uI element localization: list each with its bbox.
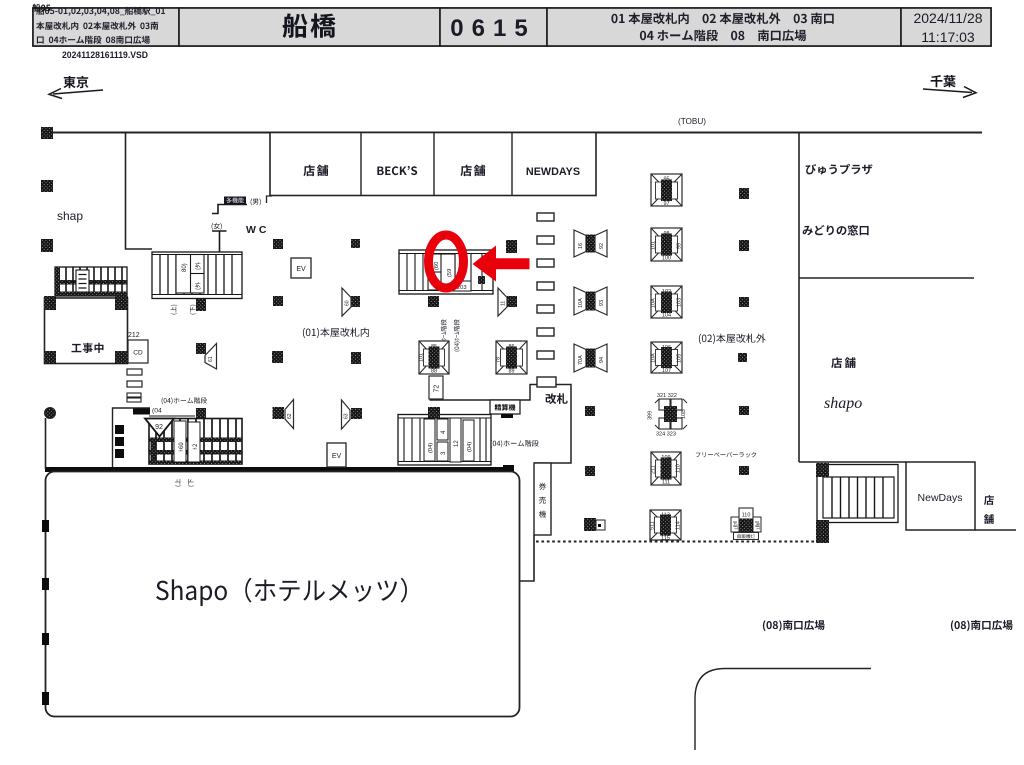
svg-text:321 322: 321 322 bbox=[657, 393, 677, 399]
svg-text:95: 95 bbox=[663, 177, 669, 183]
svg-text:2024/11/28: 2024/11/28 bbox=[913, 10, 982, 26]
svg-text:104: 104 bbox=[662, 313, 671, 319]
svg-text:110: 110 bbox=[676, 464, 682, 473]
svg-text:(59: (59 bbox=[447, 269, 453, 277]
svg-text:88: 88 bbox=[431, 369, 437, 375]
svg-text:101: 101 bbox=[651, 241, 657, 250]
svg-text:WC: WC bbox=[246, 224, 270, 236]
svg-text:80): 80) bbox=[182, 263, 188, 272]
svg-text:211: 211 bbox=[651, 465, 657, 474]
svg-text:511: 511 bbox=[650, 521, 656, 530]
svg-text:110: 110 bbox=[742, 513, 751, 519]
svg-text:10A: 10A bbox=[651, 298, 657, 308]
svg-text:60: 60 bbox=[345, 300, 351, 306]
svg-text:113: 113 bbox=[661, 513, 670, 519]
svg-text:EV: EV bbox=[332, 453, 342, 460]
svg-text:61: 61 bbox=[208, 356, 214, 362]
svg-text:0615: 0615 bbox=[450, 15, 535, 42]
svg-text:93: 93 bbox=[599, 300, 605, 306]
svg-text:98: 98 bbox=[663, 231, 669, 237]
svg-text:12: 12 bbox=[454, 440, 460, 447]
svg-text:92: 92 bbox=[155, 424, 163, 431]
svg-text:103: 103 bbox=[677, 298, 683, 307]
svg-text:109: 109 bbox=[661, 455, 670, 461]
svg-text:62: 62 bbox=[287, 413, 293, 419]
svg-text:70A: 70A bbox=[578, 355, 584, 365]
svg-text:100: 100 bbox=[662, 256, 671, 262]
svg-text:(60: (60 bbox=[434, 262, 440, 270]
svg-text:10A: 10A bbox=[578, 298, 584, 308]
svg-text:86: 86 bbox=[508, 344, 514, 350]
svg-text:106: 106 bbox=[662, 345, 671, 351]
svg-text:114: 114 bbox=[676, 521, 682, 530]
svg-text:20241128161119.VSD: 20241128161119.VSD bbox=[62, 50, 148, 61]
svg-text:97: 97 bbox=[663, 201, 669, 207]
svg-text:11: 11 bbox=[501, 301, 507, 306]
svg-text:shap: shap bbox=[57, 209, 83, 223]
svg-text:78: 78 bbox=[496, 357, 502, 363]
svg-text:CD: CD bbox=[133, 350, 143, 357]
svg-text:63: 63 bbox=[344, 413, 350, 419]
svg-text:99: 99 bbox=[677, 243, 683, 249]
svg-text:102: 102 bbox=[662, 289, 671, 295]
svg-text:92: 92 bbox=[599, 243, 605, 249]
svg-text:(TOBU): (TOBU) bbox=[678, 117, 706, 126]
svg-text:115: 115 bbox=[661, 536, 670, 542]
svg-text:94: 94 bbox=[599, 357, 605, 363]
svg-text:(04): (04) bbox=[428, 443, 434, 453]
svg-text:72: 72 bbox=[434, 385, 441, 393]
svg-text:212: 212 bbox=[128, 332, 140, 339]
svg-text:111: 111 bbox=[662, 480, 670, 486]
svg-text:16: 16 bbox=[578, 243, 584, 249]
svg-text:399: 399 bbox=[648, 411, 654, 420]
svg-text:10B: 10B bbox=[681, 409, 687, 419]
svg-text:10A: 10A bbox=[651, 353, 657, 363]
svg-text:NEWDAYS: NEWDAYS bbox=[526, 166, 580, 178]
svg-text:85: 85 bbox=[431, 344, 437, 350]
svg-text:shapo: shapo bbox=[824, 395, 862, 412]
svg-text:(04: (04 bbox=[152, 408, 162, 415]
svg-text:89: 89 bbox=[508, 369, 514, 375]
svg-text:101: 101 bbox=[419, 353, 425, 362]
svg-text:11:17:03: 11:17:03 bbox=[921, 29, 975, 45]
svg-text:EV: EV bbox=[296, 266, 306, 273]
svg-text:105: 105 bbox=[677, 354, 683, 363]
svg-text:324 323: 324 323 bbox=[656, 432, 676, 438]
svg-text:NewDays: NewDays bbox=[918, 492, 963, 504]
svg-text:(04): (04) bbox=[467, 442, 473, 452]
svg-text:107: 107 bbox=[662, 368, 671, 374]
